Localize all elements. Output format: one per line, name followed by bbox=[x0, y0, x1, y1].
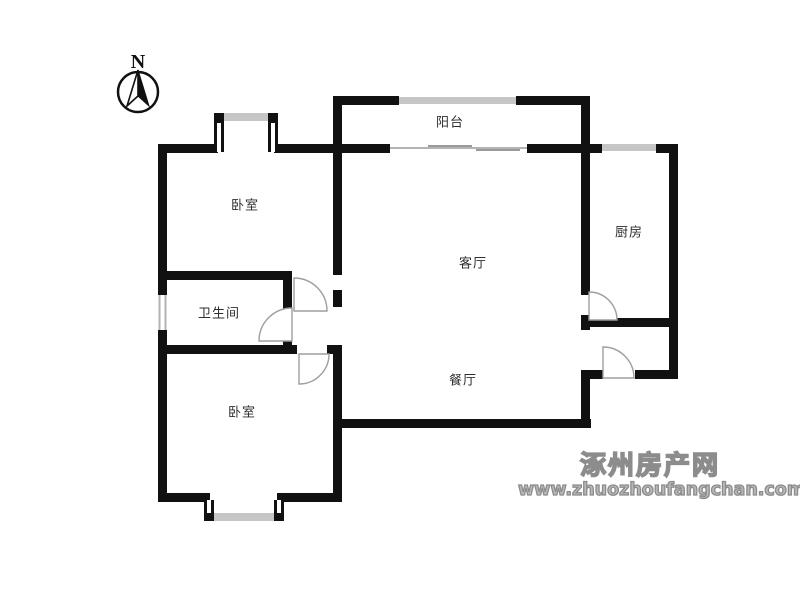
dining-room-label: 餐厅 bbox=[449, 375, 477, 388]
east-outer-wall bbox=[669, 144, 678, 378]
watermark-site-name: 涿州房产网 bbox=[518, 452, 782, 481]
bay-window-north bbox=[214, 113, 278, 152]
wall-segment bbox=[274, 144, 390, 153]
watermark: 涿州房产网 www.zhuozhoufangchan.com bbox=[518, 452, 782, 500]
kitchen-window bbox=[602, 144, 656, 151]
bathroom-label: 卫生间 bbox=[198, 308, 240, 321]
south-wall-row bbox=[158, 493, 342, 502]
bathroom-east-wall bbox=[283, 271, 292, 310]
bay-window-jamb-inner bbox=[217, 123, 221, 152]
sliding-door-panel bbox=[428, 145, 472, 147]
sliding-door-panel bbox=[476, 149, 520, 151]
balcony-label: 阳台 bbox=[436, 117, 464, 130]
balcony-window bbox=[399, 97, 516, 104]
kitchen-door bbox=[589, 292, 617, 320]
floorplan-page: N 阳台 卧室 厨房 客厅 卫生间 餐厅 卧室 涿州房产网 www.zhuozh… bbox=[0, 0, 800, 600]
wall-segment bbox=[277, 493, 342, 502]
balcony-north-wall bbox=[333, 96, 590, 105]
compass-north-label: N bbox=[131, 52, 145, 72]
bathroom-door bbox=[259, 308, 292, 341]
bathroom-window bbox=[165, 295, 167, 330]
wall-segment bbox=[158, 330, 167, 502]
bay-window-jamb-inner bbox=[271, 123, 275, 152]
entry-door bbox=[603, 347, 634, 378]
entry-south-wall bbox=[635, 370, 678, 379]
living-room-west-wall bbox=[333, 96, 342, 502]
wall-segment bbox=[333, 290, 342, 307]
west-outer-wall bbox=[158, 144, 167, 502]
bedroom-north-label: 卧室 bbox=[231, 200, 259, 213]
watermark-site-url: www.zhuozhoufangchan.com bbox=[518, 481, 782, 500]
wall-segment bbox=[333, 96, 342, 275]
living-room-label: 客厅 bbox=[459, 258, 487, 271]
dining-south-wall bbox=[333, 419, 591, 428]
wall-segment bbox=[333, 96, 399, 105]
compass bbox=[118, 70, 158, 112]
balcony-sliding-door bbox=[390, 147, 527, 149]
bedroom-south-door bbox=[299, 354, 329, 384]
entry-south-wall bbox=[582, 370, 603, 379]
wall-segment bbox=[581, 96, 590, 295]
bay-window-jamb-inner bbox=[207, 500, 211, 513]
floorplan-drawing bbox=[0, 0, 800, 600]
bay-window-glass bbox=[204, 513, 284, 521]
wall-segment bbox=[158, 493, 210, 502]
north-wall-row bbox=[158, 144, 678, 153]
bedroom-south-label: 卧室 bbox=[228, 407, 256, 420]
wall-segment bbox=[527, 144, 602, 153]
bathroom-window bbox=[159, 295, 161, 330]
wall-segment bbox=[516, 96, 590, 105]
bathroom-north-wall bbox=[158, 271, 292, 280]
bathroom-south-wall bbox=[158, 345, 297, 354]
kitchen-label: 厨房 bbox=[615, 227, 643, 240]
bay-window-south bbox=[204, 500, 284, 521]
bay-window-jamb-inner bbox=[277, 500, 281, 513]
bedroom-north-door bbox=[294, 278, 327, 311]
